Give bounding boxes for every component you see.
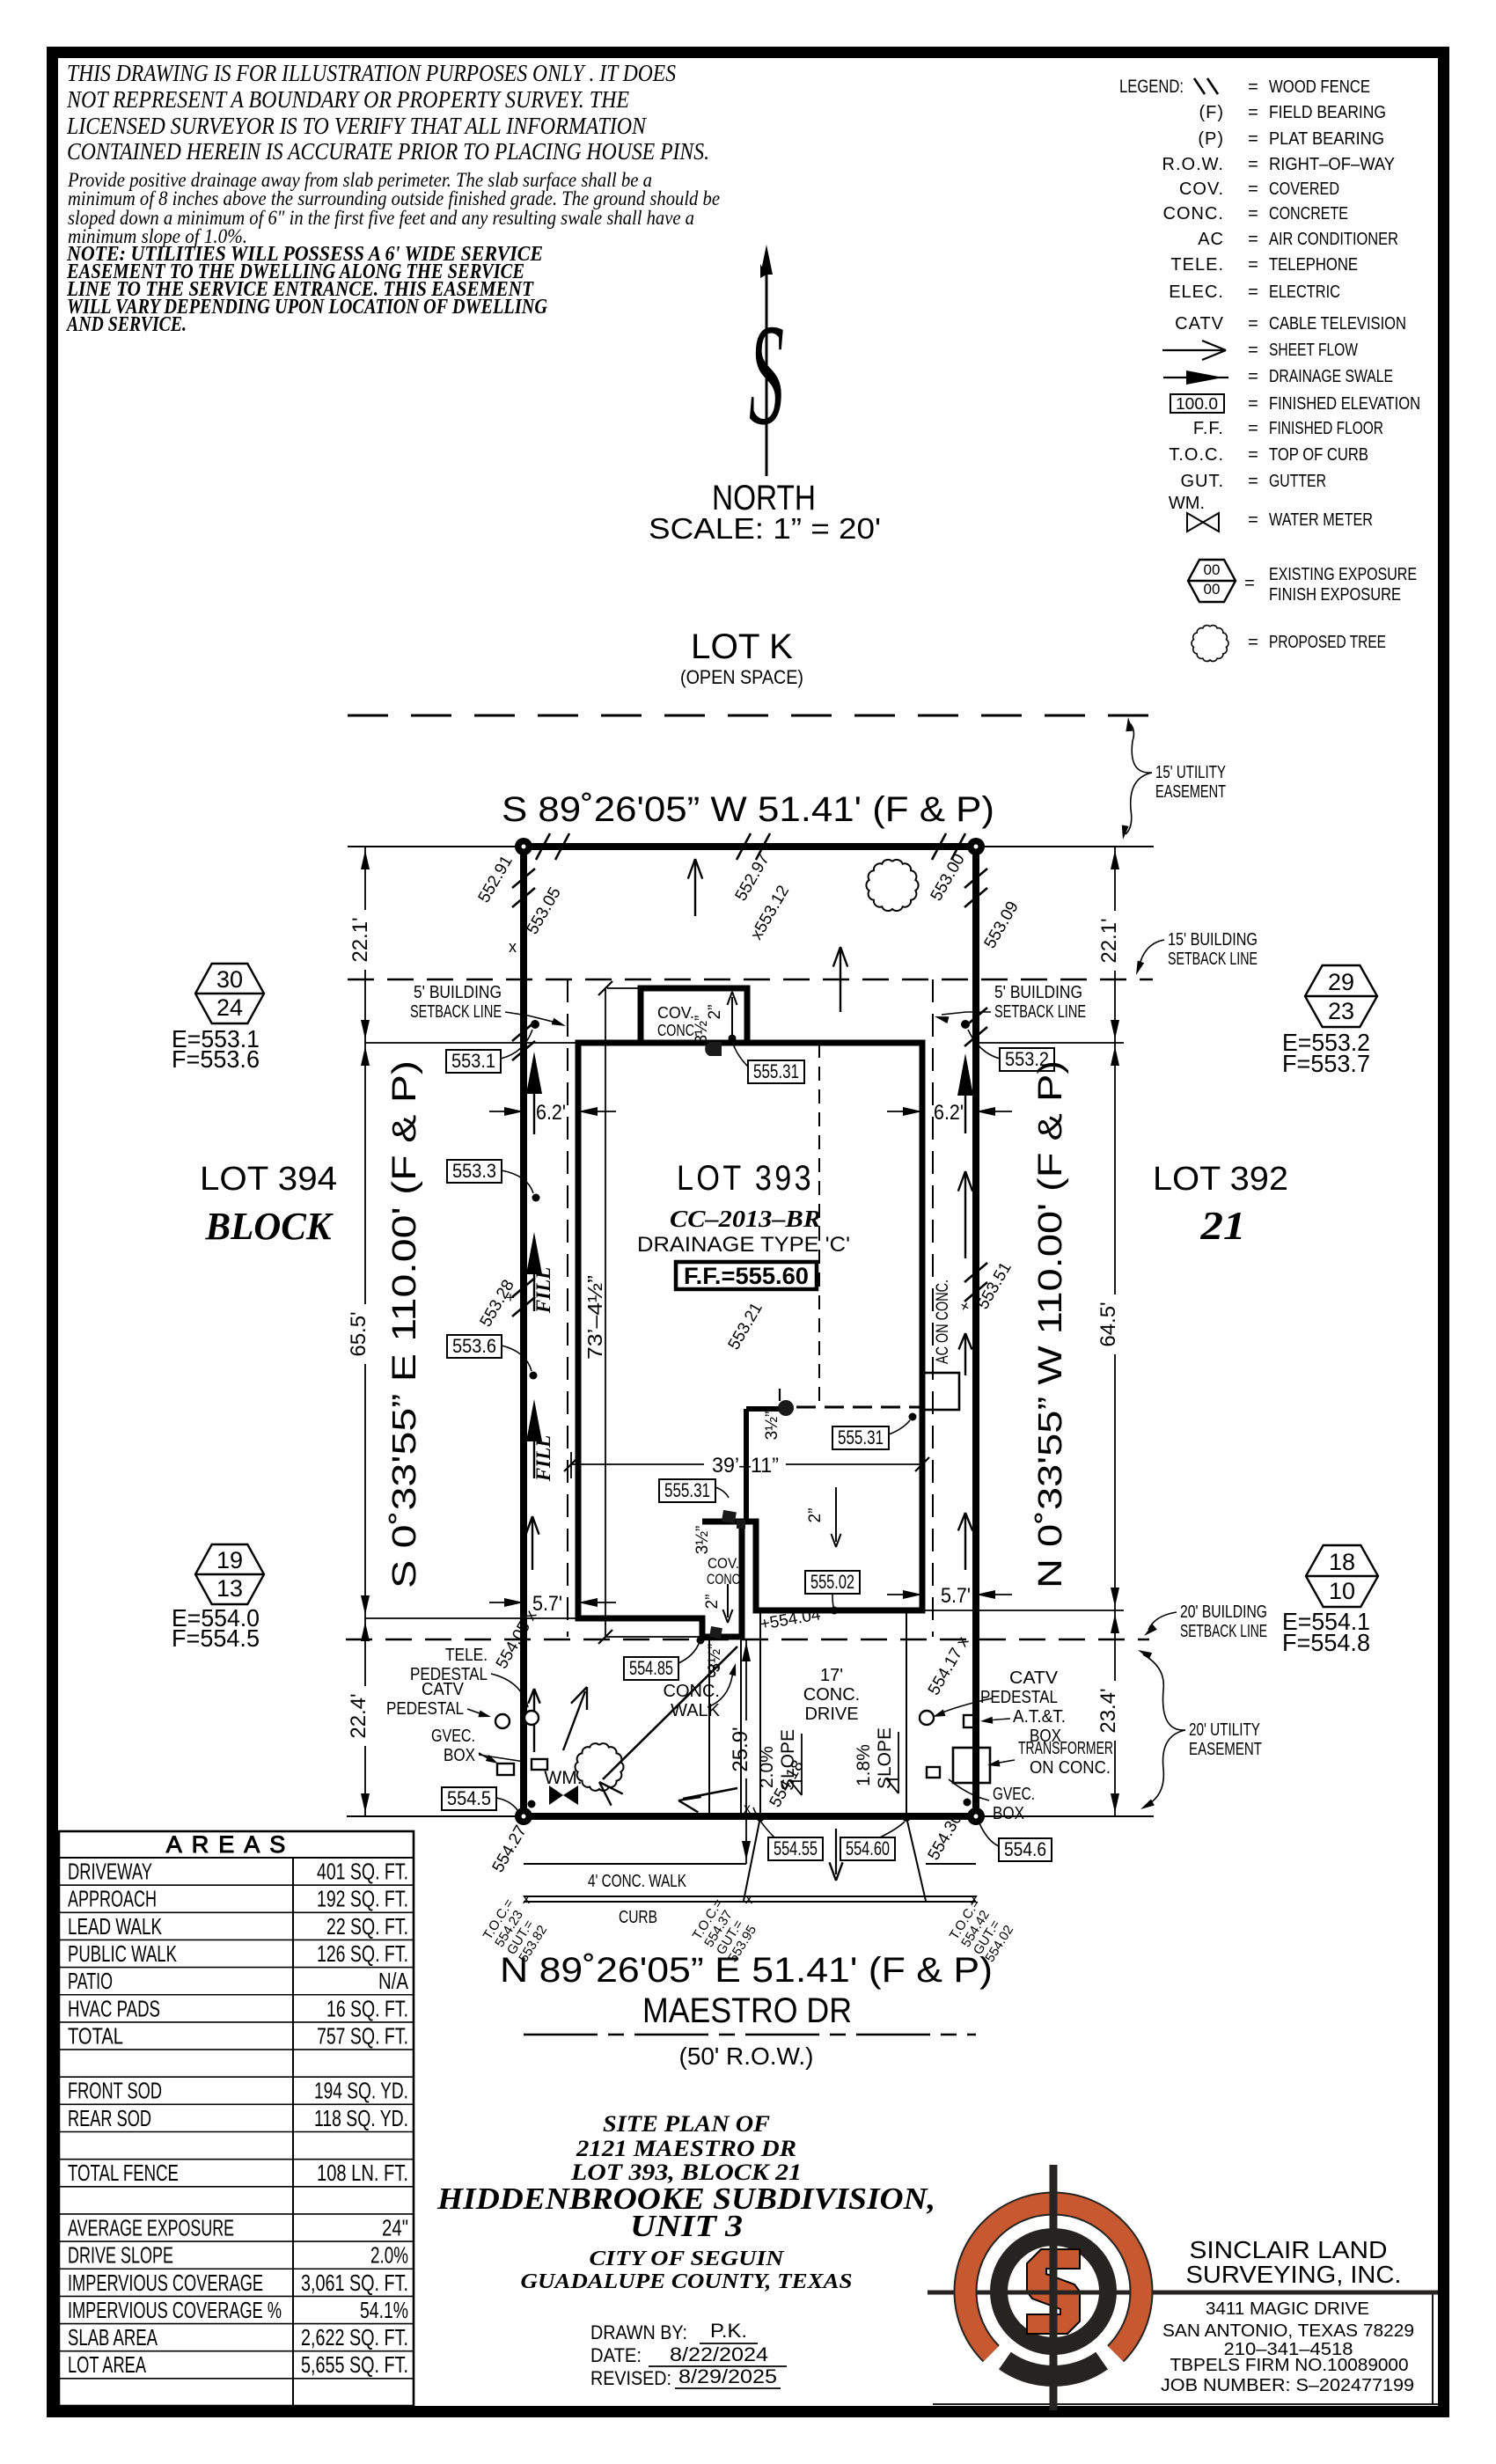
svg-text:HVAC PADS: HVAC PADS (68, 1995, 160, 2021)
svg-text:SITE PLAN OF: SITE PLAN OF (603, 2111, 770, 2137)
svg-text:F.F.=555.60: F.F.=555.60 (684, 1263, 809, 1289)
svg-text:AC: AC (1198, 230, 1224, 249)
svg-text:FINISHED ELEVATION: FINISHED ELEVATION (1269, 394, 1420, 414)
svg-text:TELE.: TELE. (445, 1646, 488, 1665)
svg-text:LEAD WALK: LEAD WALK (68, 1913, 162, 1940)
svg-text:=: = (1248, 367, 1258, 386)
svg-text:54.1%: 54.1% (360, 2297, 408, 2323)
svg-text:BOX: BOX (993, 1804, 1024, 1823)
svg-text:IMPERVIOUS COVERAGE: IMPERVIOUS COVERAGE (68, 2270, 263, 2296)
svg-text:PROPOSED TREE: PROPOSED TREE (1269, 633, 1386, 652)
svg-text:N 89˚26'05” E 51.41' (F &: N 89˚26'05” E 51.41' (F & P) (500, 1951, 993, 1990)
svg-text:+: + (506, 1289, 515, 1306)
svg-text:x: x (509, 938, 517, 956)
svg-text:64.5': 64.5' (1096, 1302, 1120, 1346)
svg-text:DATE:: DATE: (590, 2344, 642, 2366)
svg-text:LEGEND:: LEGEND: (1119, 77, 1184, 97)
svg-text:GUTTER: GUTTER (1269, 472, 1326, 491)
svg-text:2121 MAESTRO DR: 2121 MAESTRO DR (576, 2136, 796, 2161)
svg-text:PUBLIC WALK: PUBLIC WALK (68, 1940, 177, 1967)
svg-text:TOP OF CURB: TOP OF CURB (1269, 445, 1368, 465)
svg-text:5' BUILDING: 5' BUILDING (994, 983, 1082, 1002)
svg-text:SETBACK LINE: SETBACK LINE (1180, 1622, 1267, 1641)
svg-text:1.8%: 1.8% (854, 1744, 874, 1786)
svg-text:LOT 394: LOT 394 (200, 1161, 337, 1198)
svg-text:MAESTRO DR: MAESTRO DR (642, 1991, 852, 2030)
svg-text:5.7': 5.7' (532, 1592, 562, 1616)
svg-text:COV.: COV. (1179, 180, 1224, 199)
svg-text:S: S (749, 294, 784, 455)
svg-text:DRAINAGE SWALE: DRAINAGE SWALE (1269, 367, 1393, 386)
svg-text:TELE.: TELE. (1170, 255, 1224, 275)
svg-text:N 0˚33'55” W 110.00' (F &: N 0˚33'55” W 110.00' (F & P) (1032, 1060, 1069, 1588)
svg-text:JOB NUMBER: S–202477199: JOB NUMBER: S–202477199 (1161, 2376, 1414, 2395)
svg-text:39’–11”: 39’–11” (712, 1454, 779, 1478)
svg-text:SLAB AREA: SLAB AREA (68, 2324, 158, 2350)
svg-text:30: 30 (216, 966, 243, 993)
svg-text:23.4': 23.4' (1096, 1688, 1120, 1733)
svg-text:22.1': 22.1' (1097, 918, 1121, 963)
svg-text:6.2': 6.2' (934, 1101, 964, 1125)
svg-text:T.O.C.: T.O.C. (1169, 445, 1224, 465)
svg-text:SHEET FLOW: SHEET FLOW (1269, 341, 1358, 360)
svg-text:CATV: CATV (1009, 1668, 1059, 1688)
svg-text:3411 MAGIC DRIVE: 3411 MAGIC DRIVE (1206, 2299, 1369, 2319)
svg-text:TRANSFORMER: TRANSFORMER (1018, 1739, 1113, 1758)
svg-text:194 SQ. YD.: 194 SQ. YD. (314, 2078, 408, 2104)
svg-text:(P): (P) (1198, 129, 1224, 149)
svg-text:PEDESTAL: PEDESTAL (980, 1688, 1058, 1707)
svg-text:21: 21 (1199, 1203, 1245, 1248)
svg-text:AND SERVICE.: AND SERVICE. (65, 313, 187, 336)
svg-text:TELEPHONE: TELEPHONE (1269, 255, 1358, 275)
svg-text:PATIO: PATIO (68, 1968, 113, 1994)
svg-text:P.K.: P.K. (710, 2320, 747, 2342)
svg-text:=: = (1248, 472, 1258, 491)
svg-text:=: = (1248, 314, 1258, 334)
svg-text:17': 17' (820, 1666, 843, 1685)
svg-text:3,061 SQ. FT.: 3,061 SQ. FT. (301, 2270, 408, 2296)
svg-text:19: 19 (216, 1547, 243, 1573)
svg-text:TOTAL: TOTAL (68, 2022, 123, 2049)
svg-text:555.31: 555.31 (838, 1426, 884, 1448)
svg-text:3½”: 3½” (693, 1526, 712, 1555)
svg-text:(F): (F) (1199, 103, 1224, 122)
svg-text:GUT.: GUT. (1180, 472, 1224, 491)
svg-text:118 SQ. YD.: 118 SQ. YD. (314, 2105, 408, 2131)
svg-text:SAN ANTONIO, TEXAS 78229: SAN ANTONIO, TEXAS 78229 (1162, 2321, 1414, 2341)
svg-text:CITY OF SEGUIN: CITY OF SEGUIN (590, 2248, 786, 2270)
svg-text:FIELD BEARING: FIELD BEARING (1269, 103, 1386, 122)
svg-text:FILL: FILL (532, 1435, 554, 1482)
svg-text:16 SQ. FT.: 16 SQ. FT. (326, 1995, 408, 2021)
svg-text:WM.: WM. (1169, 494, 1205, 513)
svg-text:S 0˚33'55” E 110.00' (F &: S 0˚33'55” E 110.00' (F & P) (386, 1060, 423, 1588)
svg-text:554.60: 554.60 (846, 1837, 890, 1859)
svg-text:20' UTILITY: 20' UTILITY (1189, 1720, 1260, 1740)
svg-text:=: = (1248, 155, 1258, 174)
svg-text:=: = (1248, 255, 1258, 275)
svg-text:R.O.W.: R.O.W. (1162, 155, 1224, 174)
svg-text:22.4': 22.4' (347, 1693, 370, 1738)
svg-text:73’–4½”: 73’–4½” (583, 1275, 606, 1360)
svg-text:8/22/2024: 8/22/2024 (670, 2343, 768, 2365)
svg-text:LOT AREA: LOT AREA (68, 2351, 146, 2378)
svg-text:554.85: 554.85 (629, 1657, 673, 1679)
svg-text:SETBACK LINE: SETBACK LINE (1168, 950, 1258, 969)
svg-text:CONTAINED HEREIN IS ACCURATE P: CONTAINED HEREIN IS ACCURATE PRIOR TO PL… (67, 138, 709, 165)
svg-text:23: 23 (1328, 998, 1354, 1024)
svg-text:GVEC.: GVEC. (431, 1727, 475, 1746)
svg-text:F=553.7: F=553.7 (1282, 1050, 1370, 1077)
svg-text:24: 24 (216, 994, 243, 1021)
svg-text:S 89˚26'05” W 51.41' (F &: S 89˚26'05” W 51.41' (F & P) (502, 790, 994, 829)
svg-text:COVERED: COVERED (1269, 180, 1339, 199)
svg-text:CONC: CONC (707, 1571, 740, 1588)
svg-text:22 SQ. FT.: 22 SQ. FT. (326, 1913, 408, 1940)
svg-text:554.5: 554.5 (447, 1787, 491, 1809)
svg-text:401 SQ. FT.: 401 SQ. FT. (317, 1859, 408, 1885)
svg-text:F.F.: F.F. (1193, 419, 1224, 438)
svg-text:553.3: 553.3 (452, 1160, 496, 1182)
svg-text:GVEC.: GVEC. (993, 1785, 1035, 1804)
svg-text:AVERAGE EXPOSURE: AVERAGE EXPOSURE (68, 2214, 234, 2240)
svg-text:15' BUILDING: 15' BUILDING (1168, 930, 1258, 950)
svg-text:FINISHED FLOOR: FINISHED FLOOR (1269, 419, 1383, 438)
svg-text:COV.: COV. (708, 1555, 739, 1572)
svg-text:LOT 392: LOT 392 (1153, 1161, 1288, 1198)
svg-text:FINISH EXPOSURE: FINISH EXPOSURE (1269, 585, 1401, 605)
svg-text:WOOD FENCE: WOOD FENCE (1269, 77, 1370, 97)
svg-text:FILL: FILL (532, 1267, 554, 1314)
svg-text:=: = (1248, 633, 1258, 652)
svg-text:DRIVE SLOPE: DRIVE SLOPE (68, 2242, 173, 2269)
svg-text:=: = (1248, 510, 1258, 530)
svg-text:2.0%: 2.0% (370, 2242, 408, 2269)
svg-text:SETBACK LINE: SETBACK LINE (994, 1002, 1086, 1022)
svg-text:FRONT SOD: FRONT SOD (68, 2078, 162, 2104)
svg-text:=: = (1248, 77, 1258, 97)
svg-text:554.55: 554.55 (774, 1837, 818, 1859)
svg-text:3½”: 3½” (763, 1412, 781, 1441)
svg-text:553.1: 553.1 (451, 1050, 495, 1072)
svg-text:AC ON CONC.: AC ON CONC. (934, 1280, 952, 1364)
svg-text:ELEC.: ELEC. (1169, 282, 1224, 302)
svg-text:F=554.5: F=554.5 (172, 1624, 260, 1652)
svg-text:126 SQ. FT.: 126 SQ. FT. (317, 1940, 408, 1967)
svg-text:LICENSED SURVEYOR IS TO VERIFY: LICENSED SURVEYOR IS TO VERIFY THAT ALL … (66, 113, 648, 139)
svg-text:BLOCK: BLOCK (205, 1205, 334, 1248)
svg-text:ON CONC.: ON CONC. (1030, 1758, 1111, 1778)
svg-text:10: 10 (1329, 1578, 1355, 1604)
svg-text:CONCRETE: CONCRETE (1269, 204, 1348, 224)
svg-text:554.6: 554.6 (1004, 1838, 1046, 1860)
svg-text:108 LN. FT.: 108 LN. FT. (317, 2160, 408, 2186)
svg-text:CURB: CURB (619, 1908, 657, 1927)
svg-text:THIS DRAWING IS FOR ILLUSTRATI: THIS DRAWING IS FOR ILLUSTRATION PURPOSE… (67, 60, 676, 86)
svg-text:AIR CONDITIONER: AIR CONDITIONER (1269, 230, 1398, 249)
svg-text:555.31: 555.31 (753, 1060, 799, 1082)
svg-text:RIGHT–OF–WAY: RIGHT–OF–WAY (1269, 155, 1395, 174)
svg-text:00: 00 (1204, 581, 1221, 598)
svg-text:GUADALUPE COUNTY, TEXAS: GUADALUPE COUNTY, TEXAS (521, 2270, 853, 2293)
svg-text:4' CONC. WALK: 4' CONC. WALK (588, 1872, 687, 1891)
svg-text:ELECTRIC: ELECTRIC (1269, 282, 1340, 302)
svg-text:6.2': 6.2' (536, 1101, 566, 1125)
svg-text:29: 29 (1328, 969, 1354, 995)
svg-text:N/A: N/A (378, 1968, 409, 1994)
svg-text:=: = (1248, 394, 1258, 414)
svg-text:WATER METER: WATER METER (1269, 510, 1373, 530)
svg-text:555.02: 555.02 (810, 1571, 854, 1593)
svg-text:5' BUILDING: 5' BUILDING (414, 983, 502, 1002)
svg-text:8/29/2025: 8/29/2025 (678, 2365, 777, 2387)
svg-text:=: = (1248, 419, 1258, 438)
svg-text:=: = (1248, 445, 1258, 465)
svg-text:LOT 393: LOT 393 (677, 1159, 814, 1198)
svg-text:=: = (1244, 574, 1255, 593)
svg-text:100.0: 100.0 (1176, 395, 1218, 413)
svg-text:EXISTING EXPOSURE: EXISTING EXPOSURE (1269, 565, 1417, 584)
svg-text:2”: 2” (806, 1508, 825, 1523)
svg-text:PLAT BEARING: PLAT BEARING (1269, 129, 1384, 149)
svg-text:REVISED:: REVISED: (590, 2367, 671, 2389)
svg-text:24": 24" (382, 2214, 408, 2240)
svg-text:REAR SOD: REAR SOD (68, 2105, 151, 2131)
svg-text:3': 3' (707, 1662, 720, 1682)
svg-text:5.7': 5.7' (941, 1584, 971, 1608)
svg-text:CONC.: CONC. (1163, 204, 1224, 224)
svg-text:555.31: 555.31 (664, 1479, 710, 1501)
svg-text:2,622 SQ. FT.: 2,622 SQ. FT. (301, 2324, 408, 2350)
svg-text:COV.: COV. (657, 1004, 694, 1022)
svg-text:757 SQ. FT.: 757 SQ. FT. (317, 2022, 408, 2049)
svg-text:20' BUILDING: 20' BUILDING (1180, 1602, 1267, 1622)
svg-text:18: 18 (1329, 1549, 1355, 1575)
svg-text:=: = (1248, 129, 1258, 149)
svg-text:CABLE TELEVISION: CABLE TELEVISION (1269, 314, 1406, 334)
svg-text:=: = (1248, 341, 1258, 360)
svg-text:=: = (1248, 103, 1258, 122)
svg-text:AREAS: AREAS (166, 1831, 296, 1858)
svg-text:SURVEYING, INC.: SURVEYING, INC. (1186, 2261, 1402, 2288)
svg-text:NOT REPRESENT A BOUNDARY OR PR: NOT REPRESENT A BOUNDARY OR PROPERTY SUR… (66, 86, 629, 113)
svg-text:00: 00 (1204, 561, 1221, 578)
svg-text:BOX: BOX (444, 1746, 475, 1765)
svg-text:CATV: CATV (1175, 314, 1224, 334)
svg-text:3½”: 3½” (693, 1016, 711, 1045)
svg-text:PEDESTAL: PEDESTAL (386, 1699, 464, 1719)
svg-text:=: = (1248, 180, 1258, 199)
svg-text:x: x (744, 1801, 751, 1816)
svg-text:5,655 SQ. FT.: 5,655 SQ. FT. (301, 2351, 408, 2378)
svg-text:F=553.6: F=553.6 (172, 1045, 260, 1073)
svg-text:A.T.&T.: A.T.&T. (1013, 1707, 1066, 1727)
svg-text:65.5': 65.5' (347, 1311, 370, 1356)
svg-text:x: x (745, 1890, 753, 1907)
svg-text:=: = (1248, 282, 1258, 302)
svg-text:DRAWN BY:: DRAWN BY: (590, 2321, 687, 2343)
svg-text:DRIVEWAY: DRIVEWAY (68, 1859, 152, 1885)
svg-text:=: = (1248, 204, 1258, 224)
svg-text:SETBACK LINE: SETBACK LINE (410, 1002, 502, 1022)
svg-text:(50' R.O.W.): (50' R.O.W.) (679, 2042, 814, 2070)
svg-text:=: = (1248, 230, 1258, 249)
svg-text:SCALE: 1” = 20': SCALE: 1” = 20' (649, 512, 881, 545)
svg-text:DRAINAGE TYPE 'C': DRAINAGE TYPE 'C' (637, 1233, 850, 1257)
svg-text:DRIVE: DRIVE (804, 1705, 858, 1724)
svg-text:TOTAL FENCE: TOTAL FENCE (68, 2160, 179, 2186)
svg-text:CONC.: CONC. (664, 1682, 720, 1701)
svg-text:LOT K: LOT K (691, 627, 793, 666)
svg-text:SINCLAIR LAND: SINCLAIR LAND (1190, 2236, 1388, 2263)
svg-text:F=554.8: F=554.8 (1282, 1629, 1370, 1656)
svg-text:CC–2013–BR: CC–2013–BR (670, 1206, 821, 1232)
svg-text:(OPEN SPACE): (OPEN SPACE) (680, 666, 803, 688)
svg-text:CATV: CATV (422, 1680, 465, 1699)
svg-text:13: 13 (216, 1575, 243, 1602)
svg-text:2.0%: 2.0% (757, 1746, 777, 1788)
svg-text:CONC.: CONC. (803, 1685, 860, 1705)
svg-text:EASEMENT: EASEMENT (1155, 782, 1226, 802)
svg-text:EASEMENT: EASEMENT (1189, 1740, 1262, 1759)
svg-text:APPROACH: APPROACH (68, 1886, 157, 1912)
svg-text:TBPELS FIRM NO.10089000: TBPELS FIRM NO.10089000 (1170, 2356, 1409, 2375)
svg-text:22.1': 22.1' (348, 917, 372, 962)
svg-text:2”: 2” (703, 1595, 722, 1610)
svg-text:x: x (523, 1890, 531, 1907)
svg-text:553.6: 553.6 (452, 1335, 496, 1357)
svg-text:192 SQ. FT.: 192 SQ. FT. (317, 1886, 408, 1912)
svg-text:IMPERVIOUS COVERAGE %: IMPERVIOUS COVERAGE % (68, 2297, 282, 2323)
svg-text:15' UTILITY: 15' UTILITY (1155, 763, 1226, 782)
svg-text:UNIT 3: UNIT 3 (630, 2209, 743, 2243)
